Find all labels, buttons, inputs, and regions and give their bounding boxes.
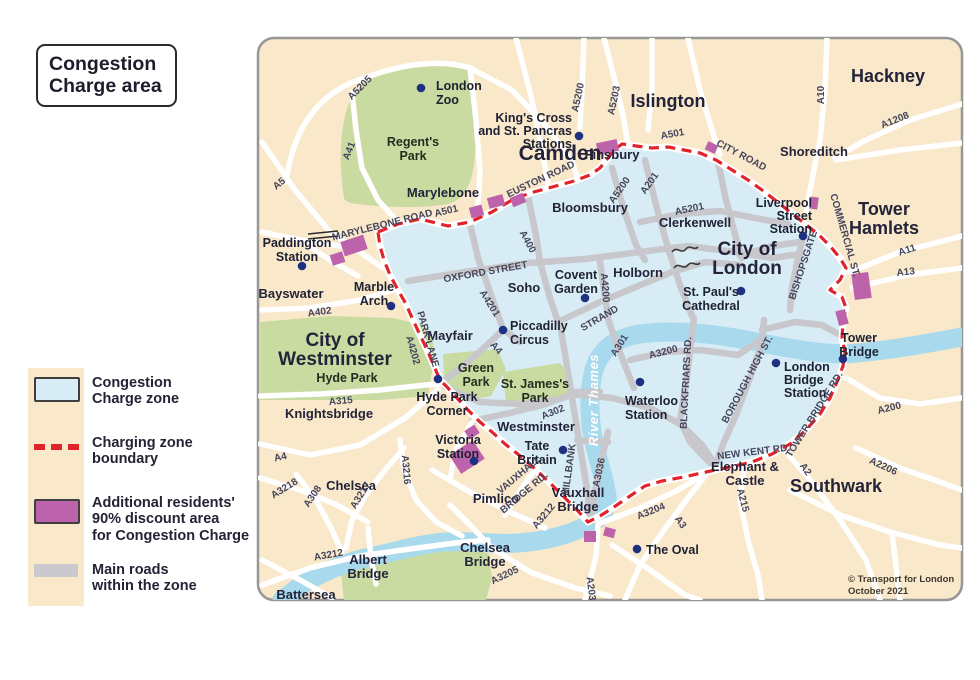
map-label: Bridge xyxy=(347,566,388,581)
map-label: Westminster xyxy=(278,349,392,370)
map-label: Piccadilly xyxy=(510,319,568,333)
map-label: Hamlets xyxy=(849,218,919,238)
map-label: The Oval xyxy=(646,543,699,557)
map-label: London xyxy=(712,258,782,279)
map-label: Arch xyxy=(360,294,388,308)
map-label: Regent's xyxy=(387,135,439,149)
map-label: Hyde Park xyxy=(316,371,377,385)
road-label: A13 xyxy=(896,266,916,279)
legend-label: Charging zone boundary xyxy=(92,435,193,468)
map-label: Station xyxy=(276,250,318,264)
map-label: Bridge xyxy=(839,345,879,359)
map-label: Albert xyxy=(349,552,387,567)
copyright-text: October 2021 xyxy=(848,586,909,597)
map-label: Victoria xyxy=(435,433,482,447)
map-label: Paddington xyxy=(263,236,332,250)
map-title-line: Congestion xyxy=(49,53,162,75)
discount-area-patch xyxy=(584,531,596,542)
map-label: Covent xyxy=(555,268,598,282)
map-label: Chelsea xyxy=(460,540,511,555)
map-label: King's Cross xyxy=(495,111,572,125)
map-label: London xyxy=(436,79,482,93)
station-dot xyxy=(575,132,584,141)
legend-label: Additional residents' 90% discount area … xyxy=(92,495,249,544)
map-label: Stations xyxy=(523,137,572,151)
map-label: Finsbury xyxy=(585,147,641,162)
map-label: St. Paul's xyxy=(683,285,739,299)
map-label: Battersea xyxy=(276,587,336,602)
station-dot xyxy=(434,375,443,384)
map-label: Tate xyxy=(525,439,550,453)
map-label: London xyxy=(784,360,830,374)
map-label: Zoo xyxy=(436,93,459,107)
map-label: Bayswater xyxy=(258,286,323,301)
map-label: Park xyxy=(462,375,489,389)
station-dot xyxy=(633,545,642,554)
map-label: Soho xyxy=(508,280,541,295)
map-label: Shoreditch xyxy=(780,144,848,159)
map-label: Park xyxy=(521,391,548,405)
map-label: Southwark xyxy=(790,476,883,496)
station-dot xyxy=(772,359,781,368)
legend-label: Congestion Charge zone xyxy=(92,375,179,408)
map-label: Waterloo xyxy=(625,394,678,408)
main-road-swatch xyxy=(34,564,78,577)
map-label: Street xyxy=(777,209,813,223)
map-label: Station xyxy=(437,447,479,461)
discount-swatch xyxy=(34,499,80,524)
map-label: Cathedral xyxy=(682,299,740,313)
map-label: Hackney xyxy=(851,66,925,86)
map-title-line: Charge area xyxy=(49,75,162,97)
map-title: Congestion Charge area xyxy=(36,44,177,107)
station-dot xyxy=(636,378,645,387)
legend: Congestion Charge zone Charging zone bou… xyxy=(28,368,260,606)
river-label: River Thames xyxy=(586,354,601,446)
map-label: Bridge xyxy=(557,499,598,514)
map-label: Knightsbridge xyxy=(285,406,373,421)
map-label: City of xyxy=(717,239,777,260)
map-label: Marble xyxy=(354,280,394,294)
map-label: Tower xyxy=(858,199,910,219)
road-label: A10 xyxy=(816,85,827,104)
map-label: Park xyxy=(399,149,426,163)
map-label: Westminster xyxy=(497,419,575,434)
map-label: Station xyxy=(625,408,667,422)
map-label: Bridge xyxy=(784,373,824,387)
station-dot xyxy=(499,326,508,335)
congestion-charge-map-page: { "title_lines": ["Congestion", "Charge … xyxy=(0,0,980,680)
map-label: Garden xyxy=(554,282,598,296)
map-label: Hyde Park xyxy=(416,390,477,404)
map-label: Castle xyxy=(725,473,764,488)
map-label: Bridge xyxy=(464,554,505,569)
map-label: Green xyxy=(458,361,494,375)
boundary-dash-swatch xyxy=(34,444,80,450)
map-label: Circus xyxy=(510,333,549,347)
map-label: Clerkenwell xyxy=(659,215,731,230)
map-label: Station xyxy=(770,222,812,236)
map-label: Corner xyxy=(427,404,468,418)
map-label: Liverpool xyxy=(756,196,812,210)
map-label: Marylebone xyxy=(407,185,479,200)
legend-label: Main roads within the zone xyxy=(92,562,197,595)
map-label: Holborn xyxy=(613,265,663,280)
map-label: St. James's xyxy=(501,377,569,391)
station-dot xyxy=(417,84,426,93)
map-label: Tower xyxy=(841,331,877,345)
map-label: and St. Pancras xyxy=(478,124,572,138)
map-label: City of xyxy=(305,330,365,351)
zone-swatch xyxy=(34,377,80,402)
copyright-text: © Transport for London xyxy=(848,574,954,585)
road-label: A315 xyxy=(328,395,353,408)
map-label: Islington xyxy=(631,91,706,111)
